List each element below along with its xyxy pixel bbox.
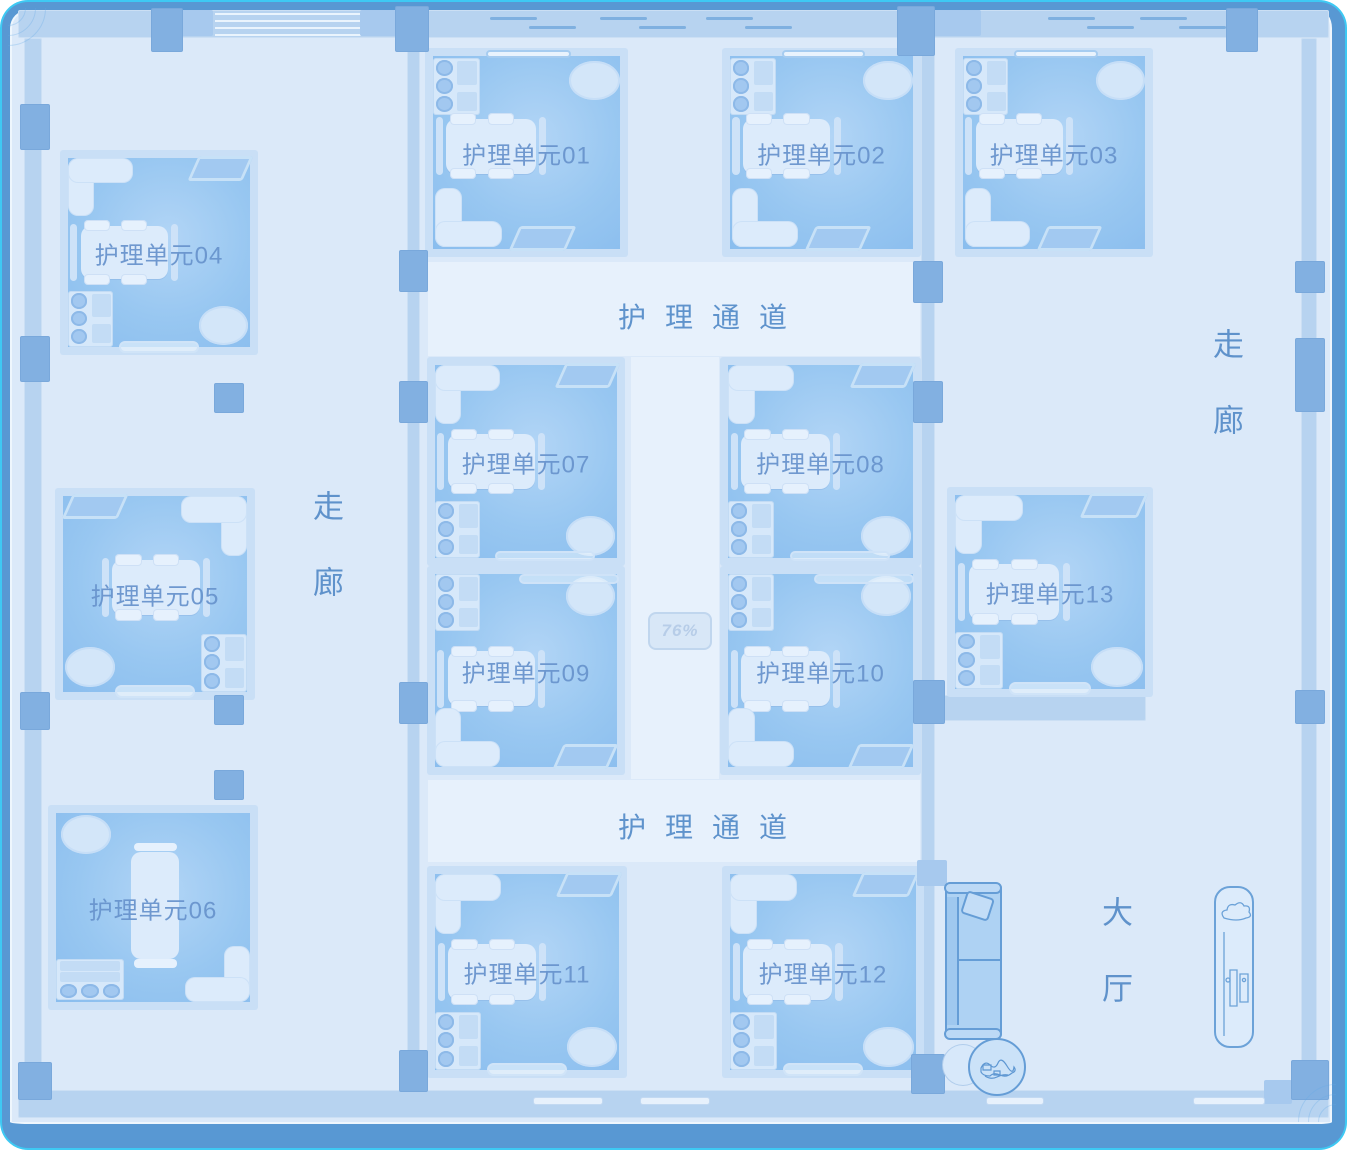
- room-nursing-unit-09[interactable]: 护理单元09: [427, 566, 625, 775]
- window-icon: [782, 50, 866, 58]
- door-icon: [119, 341, 198, 353]
- cabinet-icon: [730, 58, 776, 114]
- room-nursing-unit-11[interactable]: 护理单元11: [427, 866, 627, 1078]
- door-threshold-icon: [533, 1097, 603, 1105]
- side-table-icon: [569, 61, 620, 101]
- column: [399, 250, 428, 292]
- floor-mat-icon: [61, 494, 128, 519]
- floor-mat-icon: [1079, 493, 1148, 518]
- floor-mat-icon: [847, 744, 914, 769]
- room-nursing-unit-13[interactable]: 护理单元13: [947, 487, 1153, 697]
- wall: [24, 38, 42, 1090]
- cabinet-icon: [955, 632, 1002, 689]
- cabinet-icon: [435, 1012, 481, 1069]
- side-table-icon: [65, 647, 115, 687]
- column: [1291, 1060, 1329, 1100]
- room-nursing-unit-05[interactable]: 护理单元05: [55, 488, 255, 700]
- column: [181, 10, 213, 36]
- hall-kiosk-icon: [1214, 886, 1254, 1048]
- column: [913, 381, 943, 423]
- room-label: 护理单元03: [955, 135, 1153, 170]
- sofa-icon: [185, 946, 250, 1001]
- column: [917, 860, 947, 886]
- floor-mat-icon: [554, 363, 621, 388]
- floor-mat-icon: [1037, 226, 1104, 251]
- column: [151, 8, 183, 52]
- sofa-icon: [955, 495, 1023, 554]
- sofa-icon: [728, 708, 794, 767]
- cabinet-icon: [728, 501, 774, 557]
- floor-mat-icon: [187, 156, 253, 181]
- window-icon: [1140, 16, 1226, 30]
- door-icon: [1009, 682, 1091, 695]
- column: [911, 1054, 945, 1094]
- door-threshold-icon: [986, 1097, 1044, 1105]
- column: [1264, 1080, 1292, 1104]
- column: [214, 770, 244, 800]
- corridor-label-right: 走廊: [1203, 328, 1248, 480]
- room-label: 护理单元08: [720, 444, 921, 479]
- cabinet-icon: [963, 58, 1009, 114]
- column: [897, 6, 935, 56]
- corridor-label-left: 走廊: [303, 490, 348, 642]
- column: [1295, 690, 1325, 724]
- column: [214, 695, 244, 725]
- sofa-icon: [68, 158, 133, 215]
- door-icon: [115, 685, 195, 698]
- room-label: 护理单元13: [947, 575, 1153, 610]
- sofa-icon: [435, 708, 500, 767]
- sofa-icon: [728, 365, 794, 424]
- side-table-icon: [863, 61, 913, 101]
- column: [1295, 261, 1325, 293]
- door-icon: [487, 1063, 567, 1076]
- cabinet-icon: [433, 58, 480, 114]
- door-threshold-icon: [640, 1097, 710, 1105]
- corridor-label-top: 护理通道: [618, 296, 806, 336]
- side-table-icon: [1096, 61, 1146, 101]
- side-table-icon: [1091, 647, 1143, 687]
- window-icon: [1014, 50, 1097, 58]
- room-nursing-unit-06[interactable]: 护理单元06: [48, 805, 258, 1010]
- room-label: 护理单元02: [722, 135, 921, 170]
- room-label: 护理单元04: [60, 235, 258, 270]
- window-icon: [706, 16, 792, 30]
- column: [20, 692, 50, 730]
- column: [395, 6, 429, 52]
- window-icon: [1048, 16, 1134, 30]
- floor-mat-icon: [552, 744, 619, 769]
- sofa-icon: [965, 188, 1030, 247]
- sofa-icon: [732, 188, 798, 247]
- room-label: 护理单元12: [722, 955, 924, 990]
- cabinet-icon: [435, 574, 481, 630]
- side-table-icon: [566, 516, 616, 556]
- cabinet-icon: [730, 1012, 776, 1069]
- window-icon: [486, 50, 571, 58]
- side-table-icon: [199, 306, 249, 345]
- room-nursing-unit-07[interactable]: 护理单元07: [427, 357, 625, 566]
- floor-mat-icon: [849, 363, 916, 388]
- column: [399, 682, 428, 724]
- door-icon: [495, 551, 595, 561]
- column: [399, 1050, 428, 1092]
- column: [1226, 8, 1258, 52]
- room-label: 护理单元10: [720, 653, 921, 688]
- sofa-icon: [181, 496, 247, 555]
- lobby-round-table-icon: [968, 1038, 1026, 1096]
- column: [933, 10, 981, 36]
- column: [1295, 338, 1325, 412]
- occupancy-badge[interactable]: 76%: [648, 612, 712, 650]
- side-table-icon: [861, 516, 911, 556]
- cabinet-icon: [201, 634, 247, 691]
- room-label: 护理单元05: [55, 577, 255, 612]
- column: [214, 383, 244, 413]
- column: [913, 261, 943, 303]
- room-label: 护理单元11: [427, 955, 627, 990]
- door-icon: [790, 551, 890, 561]
- column: [20, 104, 50, 150]
- door-icon: [519, 574, 619, 584]
- column: [360, 10, 396, 36]
- column: [18, 1062, 52, 1100]
- room-nursing-unit-12[interactable]: 护理单元12: [722, 866, 924, 1078]
- window-icon: [490, 16, 576, 30]
- wall: [1301, 38, 1317, 1090]
- door-icon: [783, 1063, 864, 1076]
- floor-mat-icon: [509, 226, 577, 251]
- room-nursing-unit-10[interactable]: 护理单元10: [720, 566, 921, 775]
- room-label: 护理单元07: [427, 444, 625, 479]
- side-table-icon: [61, 815, 111, 854]
- floor-mat-icon: [852, 872, 920, 897]
- window-icon: [215, 13, 361, 36]
- room-label: 护理单元09: [427, 653, 625, 688]
- corridor-floor: [631, 357, 719, 779]
- sofa-icon: [435, 365, 500, 424]
- floor-plan: 护理单元01护理单元02护理单元03护理单元04护理单元05护理单元06护理单元…: [0, 0, 1347, 1150]
- column: [20, 336, 50, 382]
- door-icon: [814, 574, 914, 584]
- room-nursing-unit-08[interactable]: 护理单元08: [720, 357, 921, 566]
- floor-mat-icon: [804, 226, 871, 251]
- cabinet-icon: [56, 959, 123, 1000]
- hall-label: 大厅: [1092, 896, 1137, 1048]
- cabinet-icon: [728, 574, 774, 630]
- room-nursing-unit-03[interactable]: 护理单元03: [955, 48, 1153, 257]
- floor-mat-icon: [555, 872, 622, 897]
- cabinet-icon: [435, 501, 481, 557]
- column: [399, 381, 428, 423]
- sofa-icon: [435, 874, 501, 933]
- wall: [936, 695, 1146, 721]
- lobby-sofa-icon: [945, 883, 1002, 1039]
- room-nursing-unit-01[interactable]: 护理单元01: [425, 48, 628, 257]
- room-label: 护理单元01: [425, 135, 628, 170]
- side-table-icon: [863, 1027, 914, 1067]
- window-icon: [600, 16, 686, 30]
- corridor-label-bottom: 护理通道: [618, 806, 806, 846]
- door-threshold-icon: [1193, 1097, 1265, 1105]
- room-nursing-unit-02[interactable]: 护理单元02: [722, 48, 921, 257]
- room-label: 护理单元06: [48, 890, 258, 925]
- room-nursing-unit-04[interactable]: 护理单元04: [60, 150, 258, 355]
- column: [913, 680, 945, 724]
- sofa-icon: [730, 874, 797, 933]
- wall: [407, 38, 420, 1090]
- sofa-icon: [435, 188, 502, 247]
- cabinet-icon: [68, 291, 114, 346]
